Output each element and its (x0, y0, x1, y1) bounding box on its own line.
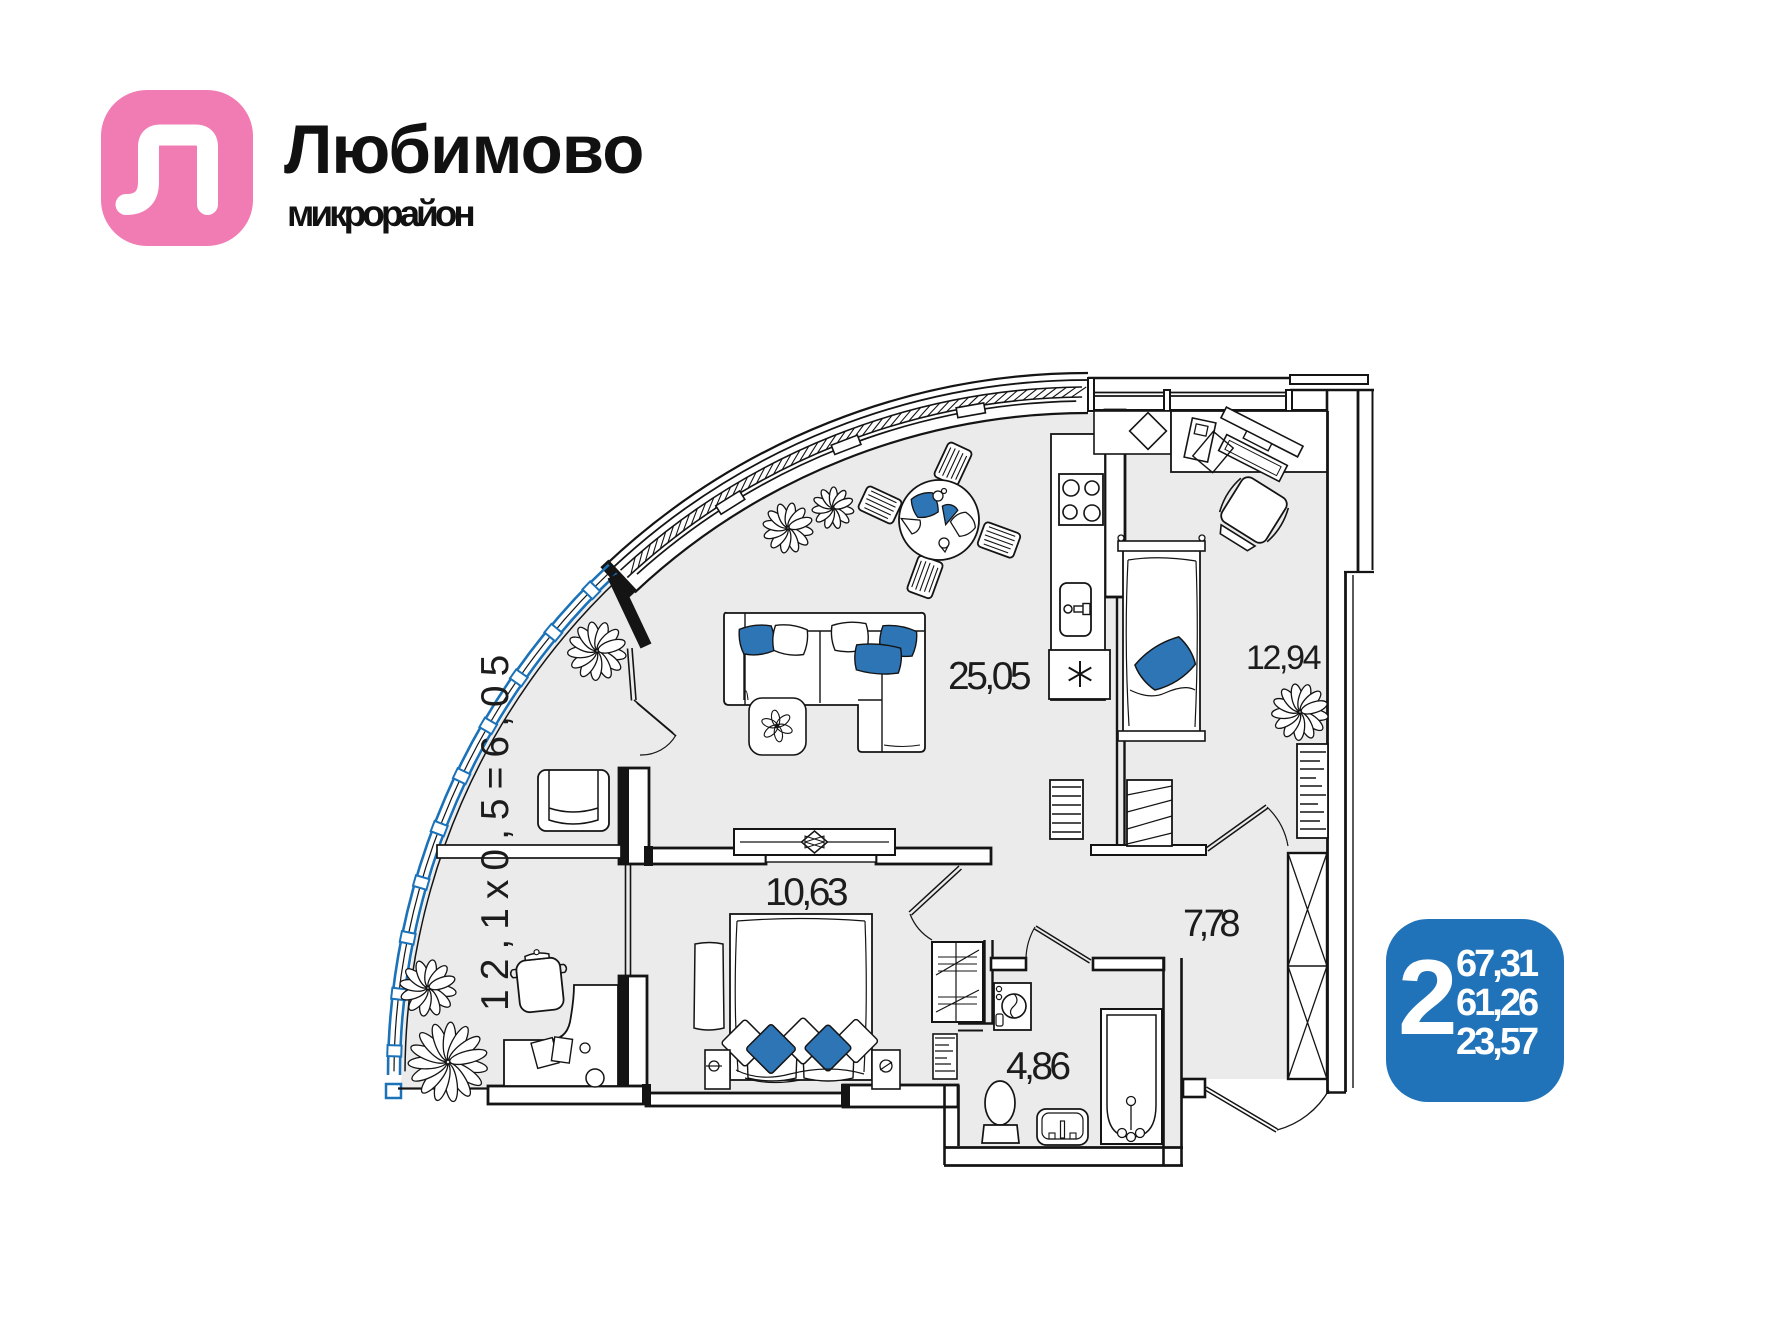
svg-text:4,86: 4,86 (1006, 1045, 1069, 1088)
svg-text:12,1х0,5=6,05: 12,1х0,5=6,05 (474, 646, 517, 1011)
svg-text:25,05: 25,05 (948, 655, 1031, 698)
svg-text:7,78: 7,78 (1183, 903, 1239, 945)
svg-text:10,63: 10,63 (765, 871, 847, 914)
svg-text:12,94: 12,94 (1246, 639, 1321, 677)
